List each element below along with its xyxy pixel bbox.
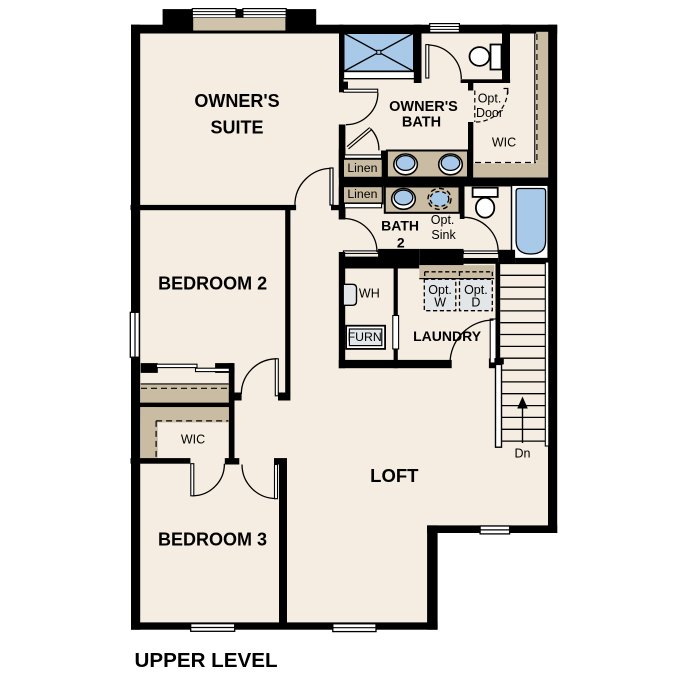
svg-text:FURN: FURN [348, 330, 382, 344]
svg-text:2: 2 [397, 234, 405, 250]
svg-text:Opt.: Opt. [431, 213, 455, 227]
svg-text:D: D [471, 295, 480, 309]
svg-text:WH: WH [359, 287, 380, 301]
svg-text:Sink: Sink [431, 228, 456, 242]
svg-text:Door: Door [476, 106, 503, 120]
svg-text:Dn: Dn [515, 447, 531, 461]
svg-text:Linen: Linen [347, 187, 377, 201]
svg-text:OWNER'S: OWNER'S [389, 99, 458, 115]
svg-text:OWNER'S: OWNER'S [194, 91, 279, 111]
svg-text:W: W [434, 295, 446, 309]
svg-text:LAUNDRY: LAUNDRY [413, 328, 482, 344]
svg-text:WIC: WIC [181, 432, 205, 446]
svg-text:BEDROOM 3: BEDROOM 3 [158, 529, 267, 549]
svg-text:BATH: BATH [402, 114, 441, 130]
svg-text:UPPER LEVEL: UPPER LEVEL [135, 649, 278, 672]
svg-text:WIC: WIC [492, 136, 516, 150]
svg-text:Linen: Linen [347, 161, 377, 175]
svg-text:SUITE: SUITE [210, 118, 263, 138]
svg-text:BATH: BATH [381, 218, 419, 234]
svg-text:Opt.: Opt. [478, 91, 502, 105]
svg-text:LOFT: LOFT [370, 465, 419, 486]
svg-text:BEDROOM 2: BEDROOM 2 [158, 273, 267, 293]
